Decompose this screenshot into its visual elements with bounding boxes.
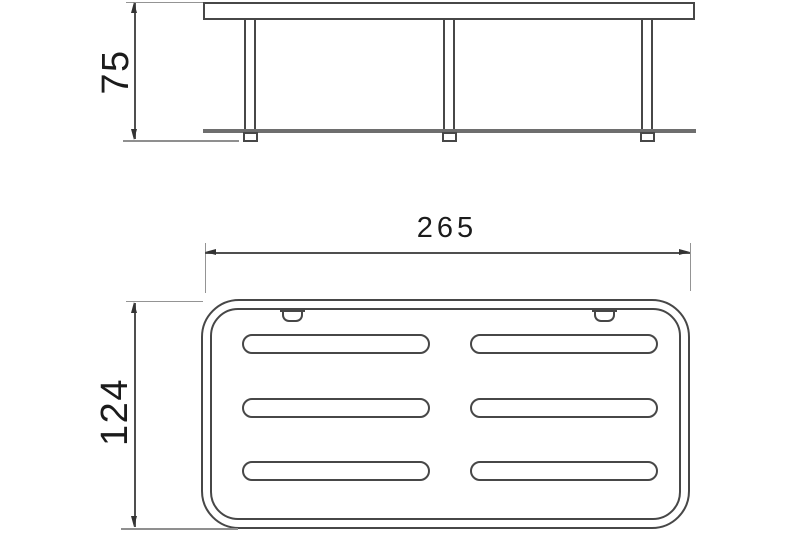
arrowhead-down-icon — [131, 129, 137, 140]
extension-line — [126, 301, 203, 302]
arrowhead-down-icon — [131, 516, 137, 527]
dimension-line — [205, 252, 690, 254]
extension-line — [121, 528, 238, 530]
arrowhead-left-icon — [205, 249, 216, 255]
shelf-leg-middle — [443, 19, 455, 135]
shelf-back-rail — [203, 2, 695, 20]
technical-drawing-canvas: 75 265 124 — [0, 0, 800, 533]
dimension-value-depth: 124 — [81, 378, 149, 446]
mounting-hook-left — [282, 309, 303, 322]
drain-slot — [242, 334, 430, 354]
drain-slot — [470, 461, 658, 481]
dimension-value-height: 75 — [94, 50, 138, 94]
shelf-foot-right — [640, 132, 655, 142]
arrowhead-up-icon — [131, 302, 137, 313]
shelf-foot-left — [243, 132, 258, 142]
extension-line — [123, 140, 239, 142]
drain-slot — [242, 398, 430, 418]
mounting-hook-right — [594, 309, 615, 322]
dimension-value-width: 265 — [397, 212, 497, 244]
drain-slot — [242, 461, 430, 481]
shelf-foot-middle — [442, 132, 457, 142]
arrowhead-up-icon — [131, 2, 137, 13]
shelf-leg-left — [244, 19, 256, 135]
drain-slot — [470, 334, 658, 354]
arrowhead-right-icon — [679, 249, 690, 255]
drain-slot — [470, 398, 658, 418]
extension-line — [126, 2, 204, 3]
shelf-leg-right — [641, 19, 653, 135]
